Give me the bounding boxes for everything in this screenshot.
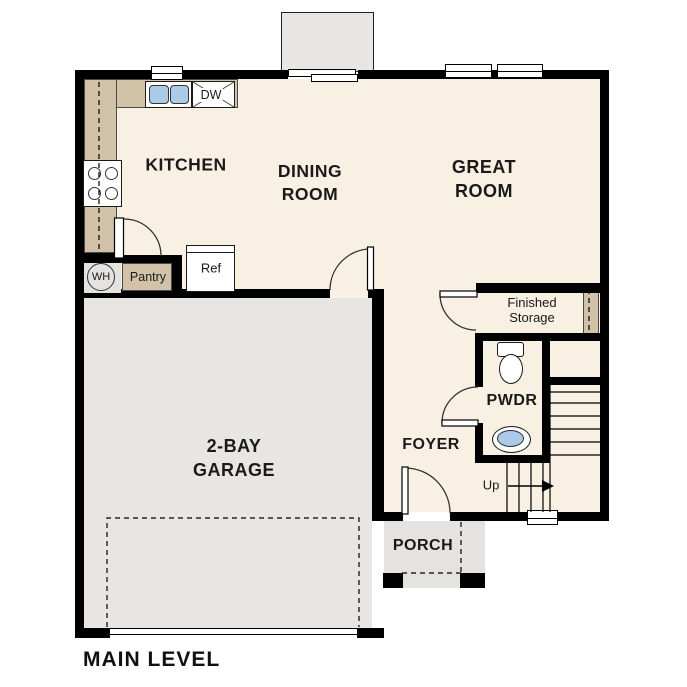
room-label-garage-line2: GARAGE — [193, 458, 275, 482]
window-mullion — [498, 71, 542, 72]
great-room-window-2 — [497, 64, 543, 78]
garage-door — [110, 628, 357, 635]
wall-pantry-top — [122, 255, 178, 263]
porch-post-right — [460, 573, 485, 588]
wall-powder-right — [542, 341, 550, 463]
room-label-porch: PORCH — [393, 537, 453, 555]
sink-basin-left — [149, 85, 169, 104]
label-pantry: Pantry — [130, 270, 166, 284]
bay-bumpout — [281, 12, 374, 72]
stove-burner — [105, 187, 118, 200]
stair-landing-window — [527, 510, 558, 525]
water-heater-circle: WH — [87, 263, 115, 291]
room-label-great: GREAT ROOM — [452, 155, 516, 203]
window-mullion — [152, 73, 182, 74]
water-heater-label: WH — [92, 271, 110, 283]
room-label-foyer: FOYER — [402, 436, 460, 454]
room-label-dining-line2: ROOM — [278, 183, 342, 206]
wall-storage-top — [476, 283, 600, 293]
powder-sink-bowl — [497, 430, 524, 447]
label-up: Up — [483, 478, 500, 493]
porch-post-left — [383, 573, 403, 588]
room-label-great-line2: ROOM — [452, 179, 516, 203]
room-label-powder: PWDR — [487, 392, 538, 410]
wall-powder-bottom — [475, 455, 550, 463]
sink-basin-right — [170, 85, 189, 104]
wall-counter-cap — [84, 253, 122, 263]
toilet-bowl — [499, 354, 523, 384]
powder-sink — [492, 426, 531, 453]
great-room-window-1 — [445, 64, 492, 78]
kitchen-sink — [145, 81, 192, 108]
room-label-storage-line2: Storage — [507, 310, 556, 325]
room-label-storage-line1: Finished — [507, 295, 556, 310]
wall-powder-left-upper — [475, 341, 483, 387]
room-label-dining-line1: DINING — [278, 160, 342, 183]
kitchen-window — [151, 66, 183, 80]
room-label-great-line1: GREAT — [452, 155, 516, 179]
wall-left — [75, 70, 84, 638]
room-label-kitchen: KITCHEN — [145, 155, 226, 176]
room-label-garage: 2-BAY GARAGE — [193, 434, 275, 482]
wall-right — [600, 70, 609, 521]
range-stove — [83, 160, 122, 207]
plan-title: MAIN LEVEL — [83, 648, 220, 672]
floor-plan: WH — [0, 0, 687, 687]
storage-closet-strip — [583, 287, 599, 336]
wall-garage-bottom-right — [357, 628, 384, 638]
wall-pantry-right — [172, 255, 182, 298]
window-mullion — [446, 71, 491, 72]
room-label-garage-line1: 2-BAY — [193, 434, 275, 458]
wall-storage-bottom — [475, 333, 600, 341]
wall-stair-top — [545, 377, 600, 385]
room-label-storage: Finished Storage — [507, 295, 556, 325]
stove-burner — [88, 167, 101, 180]
label-ref: Ref — [201, 261, 221, 276]
room-label-dining: DINING ROOM — [278, 160, 342, 206]
stove-burner — [105, 167, 118, 180]
wall-garage-right — [372, 289, 384, 521]
stove-burner — [88, 187, 101, 200]
window-mullion — [528, 518, 557, 519]
label-dw: DW — [200, 88, 223, 102]
refrigerator-handle — [187, 252, 234, 253]
wall-garage-bottom-left — [75, 628, 110, 638]
sliding-patio-door-leaf-2 — [311, 74, 358, 82]
